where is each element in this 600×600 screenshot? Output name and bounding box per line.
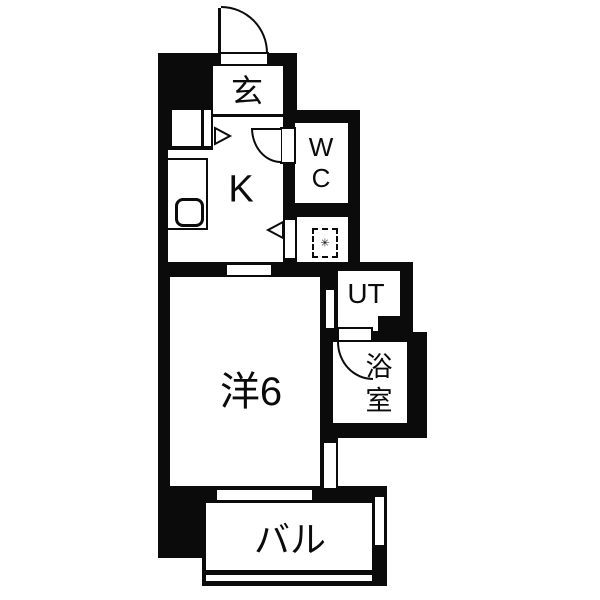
label-wc: W C bbox=[309, 132, 334, 194]
entrance-door-arc bbox=[221, 6, 268, 53]
bath-door-leaf bbox=[337, 327, 373, 342]
ps-marker: ✳ bbox=[320, 237, 329, 250]
label-kitchen: K bbox=[228, 169, 253, 212]
genkan-kitchen-step-line bbox=[213, 114, 283, 117]
wall-bottom-left-block bbox=[158, 488, 202, 558]
label-wc-line1: W bbox=[309, 132, 334, 163]
cabinet-door-triangle bbox=[214, 127, 232, 145]
label-bath: 浴 室 bbox=[366, 350, 393, 418]
label-genkan: 玄 bbox=[231, 66, 263, 112]
label-wc-line2: C bbox=[309, 163, 334, 194]
shoe-cabinet bbox=[170, 108, 213, 148]
shoe-cabinet-divider bbox=[201, 110, 204, 146]
kitchen-hall-door-leaf bbox=[283, 218, 297, 260]
balcony-side-slit bbox=[375, 497, 384, 545]
kitchen-western-opening bbox=[225, 263, 273, 277]
balcony-rail-outer bbox=[202, 570, 387, 575]
kitchen-sink bbox=[175, 198, 204, 227]
label-balcony: バル bbox=[254, 511, 326, 563]
label-ut: UT bbox=[347, 278, 384, 310]
hall-door-triangle bbox=[266, 221, 284, 239]
entrance-threshold bbox=[219, 52, 269, 66]
label-bath-line1: 浴 bbox=[366, 350, 393, 384]
balcony-window bbox=[217, 490, 312, 500]
balcony-rail-inner bbox=[202, 581, 387, 586]
label-western: 洋6 bbox=[220, 359, 282, 417]
western-side-window bbox=[324, 443, 336, 488]
floorplan-canvas: ✳ 玄 K W C UT 洋6 浴 室 バル bbox=[0, 0, 600, 600]
label-bath-line2: 室 bbox=[366, 384, 393, 418]
wc-door-leaf bbox=[280, 127, 296, 164]
ut-door-leaf bbox=[324, 288, 336, 330]
